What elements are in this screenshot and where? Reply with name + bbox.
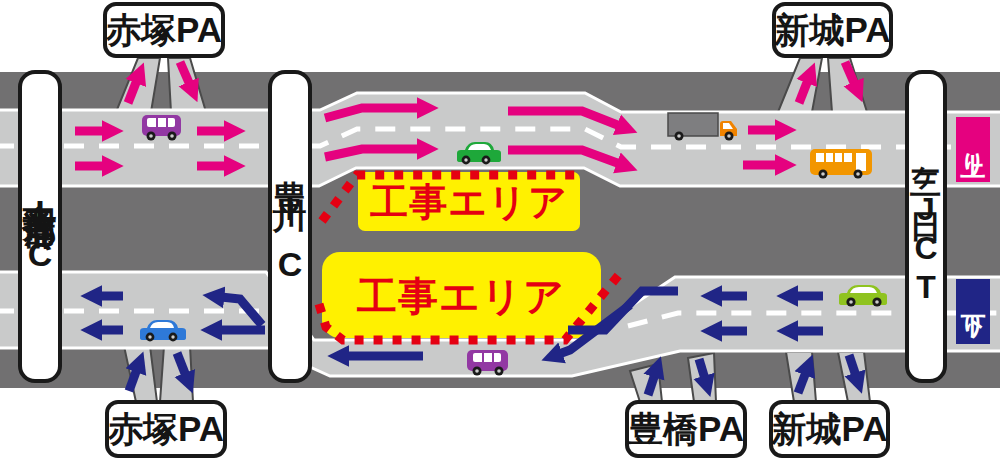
down-direction-badge: 下り <box>956 279 990 344</box>
construction-label-bottom: 工事エリア <box>356 274 565 318</box>
ramp-toyohashi-entry <box>630 364 662 402</box>
construction-areas: 工事エリア 工事エリア <box>319 172 622 340</box>
sign-akatsuka-pa-bottom: 赤塚PA <box>105 400 227 458</box>
sign-shinshiro-pa-bottom: 新城PA <box>769 400 890 458</box>
sign-mikkabi-jct: 三ヶ日JCT <box>905 70 947 383</box>
orange-bus-icon <box>810 149 872 179</box>
sign-shinshiro-pa-top: 新城PA <box>772 2 893 58</box>
sign-toyohashi-pa-bottom: 豊橋PA <box>625 400 747 458</box>
pa-exit-arrow <box>699 359 705 379</box>
diagram-canvas: 工事エリア 工事エリア <box>0 0 1000 461</box>
sign-toyokawa-ic: 豊川IC <box>268 70 312 383</box>
sign-otowa-gamagori-ic: 音羽蒲郡IC <box>18 70 62 383</box>
highway-construction-diagram: 工事エリア 工事エリア <box>0 0 1000 461</box>
sign-akatsuka-pa-top: 赤塚PA <box>103 2 225 58</box>
construction-label-top: 工事エリア <box>369 181 568 223</box>
up-direction-badge: 上り <box>956 117 990 182</box>
